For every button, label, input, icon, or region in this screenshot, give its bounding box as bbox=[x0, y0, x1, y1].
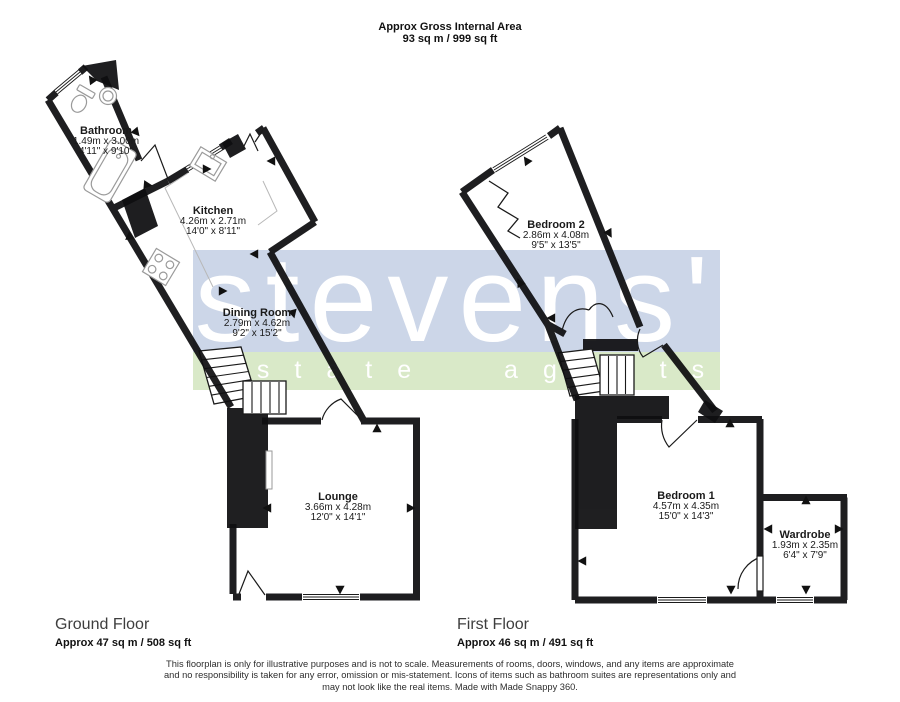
room-label-dining-room: Dining Room 2.79m x 4.62m 9'2" x 15'2" bbox=[223, 308, 291, 339]
room-dim-imperial: 15'0" x 14'3" bbox=[653, 512, 719, 522]
room-dim-imperial: 4'11" x 9'10" bbox=[73, 147, 139, 157]
disclaimer-line-3: may not look like the real items. Made w… bbox=[0, 682, 900, 693]
first-floor-area: Approx 46 sq m / 491 sq ft bbox=[457, 637, 593, 649]
room-dim-imperial: 12'0" x 14'1" bbox=[305, 513, 371, 523]
room-label-kitchen: Kitchen 4.26m x 2.71m 14'0" x 8'11" bbox=[180, 206, 246, 237]
stove-icon bbox=[142, 248, 179, 285]
chimney-breast-outline bbox=[489, 181, 520, 238]
first-floor-title: First Floor bbox=[457, 616, 529, 633]
disclaimer-line-2: and no responsibility is taken for any e… bbox=[0, 670, 900, 681]
room-label-wardrobe: Wardrobe 1.93m x 2.35m 6'4" x 7'9" bbox=[772, 530, 838, 561]
room-label-bedroom-1: Bedroom 1 4.57m x 4.35m 15'0" x 14'3" bbox=[653, 491, 719, 522]
gross-area-header: Approx Gross Internal Area 93 sq m / 999… bbox=[0, 21, 900, 45]
toilet-icon bbox=[67, 85, 96, 117]
floorplan-page: stevens' estate agents bbox=[0, 0, 900, 702]
room-label-bathroom: Bathroom 1.49m x 3.00m 4'11" x 9'10" bbox=[73, 126, 139, 157]
room-dim-imperial: 9'5" x 13'5" bbox=[523, 241, 589, 251]
room-dim-imperial: 14'0" x 8'11" bbox=[180, 227, 246, 237]
gross-area-value: 93 sq m / 999 sq ft bbox=[0, 33, 900, 45]
radiator bbox=[266, 451, 272, 489]
first-floor-windows bbox=[492, 133, 814, 603]
room-label-lounge: Lounge 3.66m x 4.28m 12'0" x 14'1" bbox=[305, 492, 371, 523]
room-dim-imperial: 6'4" x 7'9" bbox=[772, 551, 838, 561]
gross-area-title: Approx Gross Internal Area bbox=[0, 21, 900, 33]
basin-icon bbox=[100, 88, 117, 105]
disclaimer: This floorplan is only for illustrative … bbox=[0, 659, 900, 693]
room-label-bedroom-2: Bedroom 2 2.86m x 4.08m 9'5" x 13'5" bbox=[523, 220, 589, 251]
ground-floor-area: Approx 47 sq m / 508 sq ft bbox=[55, 637, 191, 649]
disclaimer-line-1: This floorplan is only for illustrative … bbox=[0, 659, 900, 670]
room-dim-imperial: 9'2" x 15'2" bbox=[223, 329, 291, 339]
ground-floor-title: Ground Floor bbox=[55, 616, 149, 633]
floorplan-drawing bbox=[0, 0, 900, 702]
